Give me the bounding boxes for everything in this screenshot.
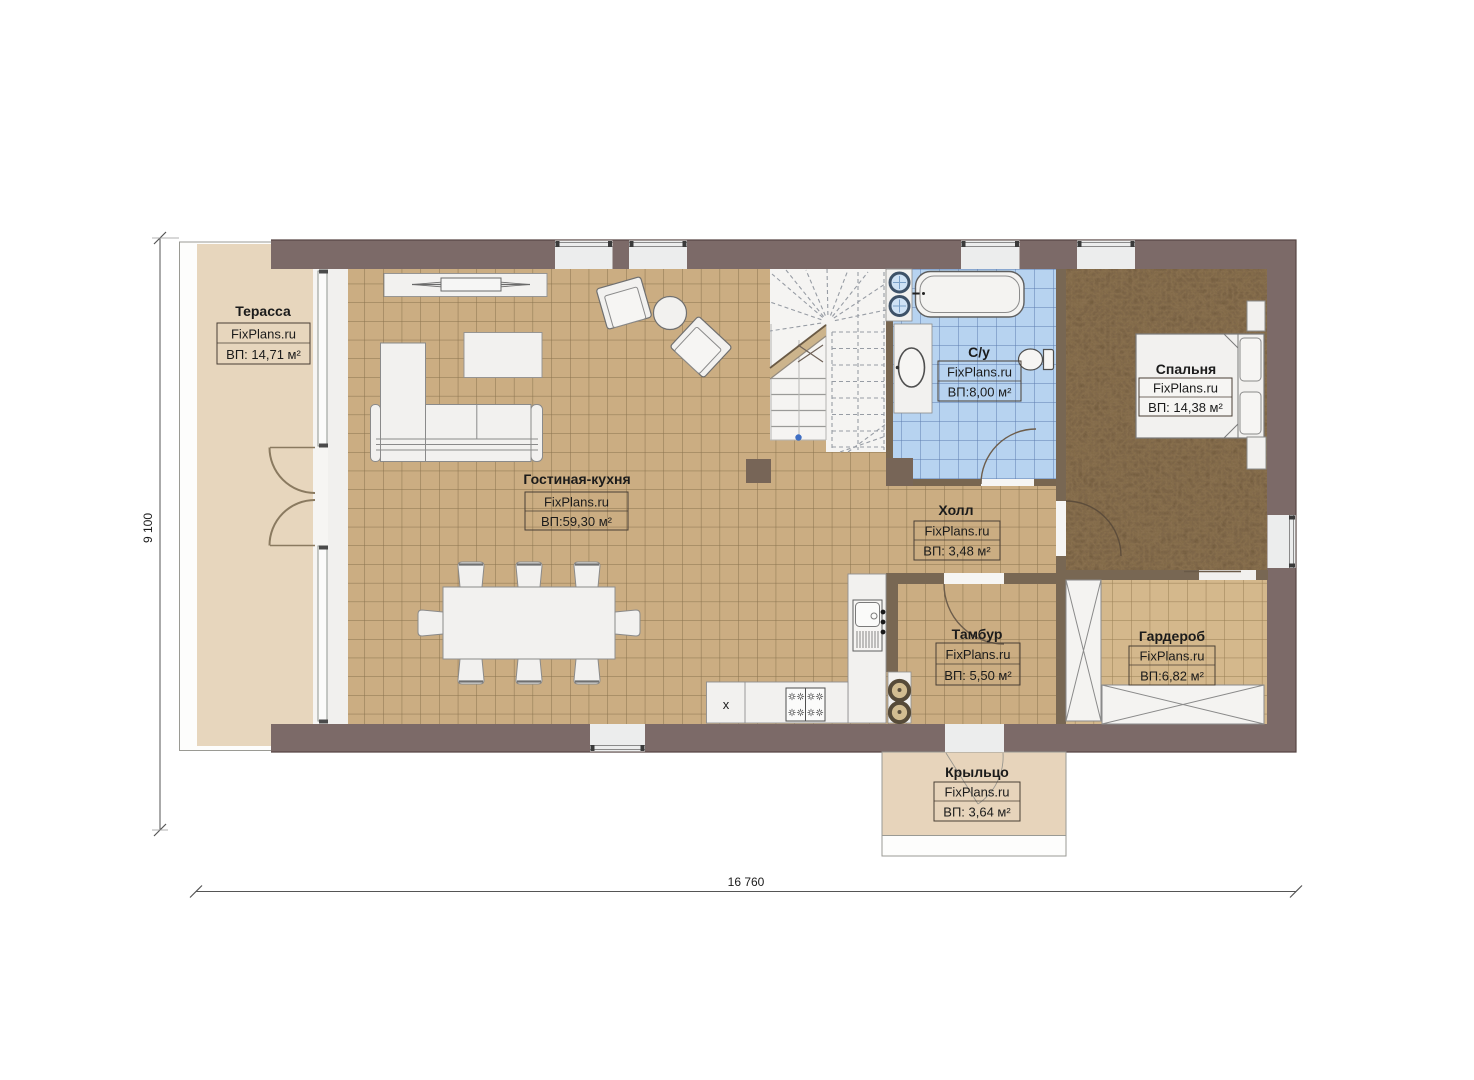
svg-text:ВП: 14,38 м²: ВП: 14,38 м² xyxy=(1148,400,1223,415)
svg-text:ВП: 3,48 м²: ВП: 3,48 м² xyxy=(923,544,991,559)
svg-text:FixPlans.ru: FixPlans.ru xyxy=(947,365,1012,380)
svg-text:С/у: С/у xyxy=(968,344,990,360)
svg-text:16 760: 16 760 xyxy=(728,875,765,889)
svg-text:Холл: Холл xyxy=(938,502,973,518)
svg-text:ВП: 5,50 м²: ВП: 5,50 м² xyxy=(944,668,1012,683)
svg-text:x: x xyxy=(723,697,730,712)
svg-text:9 100: 9 100 xyxy=(141,513,155,543)
svg-text:Гардероб: Гардероб xyxy=(1139,628,1206,644)
svg-text:ВП: 3,64 м²: ВП: 3,64 м² xyxy=(943,805,1011,820)
svg-text:Спальня: Спальня xyxy=(1156,361,1216,377)
svg-text:FixPlans.ru: FixPlans.ru xyxy=(945,647,1010,662)
svg-text:ВП:8,00 м²: ВП:8,00 м² xyxy=(948,385,1012,400)
svg-text:FixPlans.ru: FixPlans.ru xyxy=(1139,649,1204,664)
svg-text:Терасса: Терасса xyxy=(235,303,291,319)
svg-text:Гостиная-кухня: Гостиная-кухня xyxy=(523,471,630,487)
svg-text:ВП: 14,71 м²: ВП: 14,71 м² xyxy=(226,347,301,362)
svg-text:Крыльцо: Крыльцо xyxy=(945,764,1009,780)
svg-text:FixPlans.ru: FixPlans.ru xyxy=(924,524,989,539)
svg-text:FixPlans.ru: FixPlans.ru xyxy=(944,785,1009,800)
svg-text:Тамбур: Тамбур xyxy=(952,626,1003,642)
svg-text:ВП:59,30 м²: ВП:59,30 м² xyxy=(541,514,613,529)
svg-text:ВП:6,82 м²: ВП:6,82 м² xyxy=(1140,669,1204,684)
svg-text:FixPlans.ru: FixPlans.ru xyxy=(231,327,296,342)
svg-text:FixPlans.ru: FixPlans.ru xyxy=(1153,381,1218,396)
svg-text:FixPlans.ru: FixPlans.ru xyxy=(544,495,609,510)
